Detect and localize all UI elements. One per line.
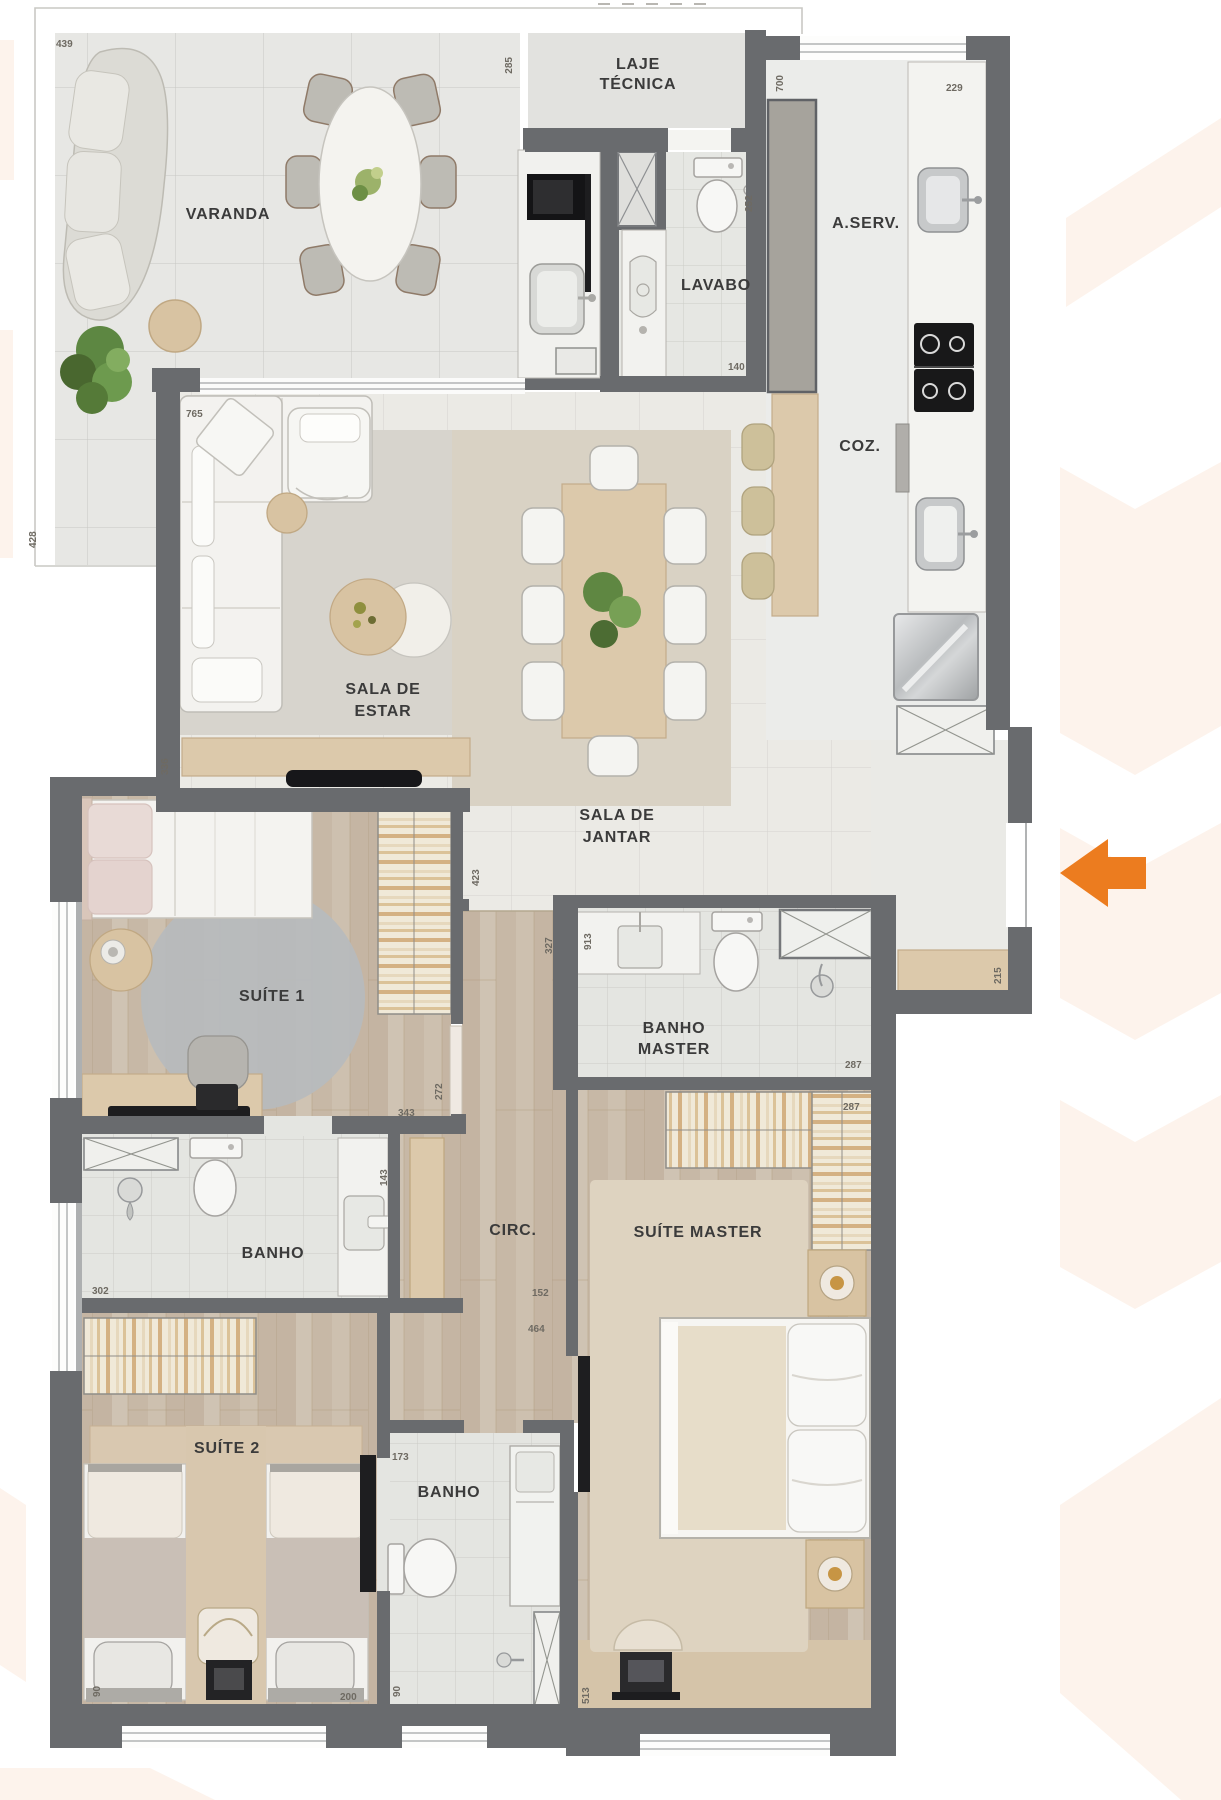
svg-text:464: 464 <box>528 1324 545 1335</box>
svg-text:LAJE: LAJE <box>616 56 660 73</box>
svg-text:90: 90 <box>392 1685 403 1697</box>
svg-text:SALA DE: SALA DE <box>579 807 654 824</box>
svg-text:287: 287 <box>843 1102 860 1113</box>
svg-text:913: 913 <box>583 933 594 950</box>
svg-text:143: 143 <box>379 1169 390 1186</box>
svg-text:229: 229 <box>946 83 963 94</box>
svg-text:JANTAR: JANTAR <box>583 829 652 846</box>
svg-text:BANHO: BANHO <box>643 1020 706 1037</box>
svg-text:302: 302 <box>92 1286 109 1297</box>
svg-text:MASTER: MASTER <box>638 1041 710 1058</box>
svg-text:423: 423 <box>471 869 482 886</box>
svg-text:513: 513 <box>581 1687 592 1704</box>
svg-text:428: 428 <box>28 531 39 548</box>
svg-text:336: 336 <box>160 758 171 775</box>
svg-text:200: 200 <box>340 1692 357 1703</box>
svg-text:COZ.: COZ. <box>839 438 880 455</box>
svg-text:90: 90 <box>92 1685 103 1697</box>
svg-text:287: 287 <box>845 1060 862 1071</box>
svg-text:343: 343 <box>398 1108 415 1119</box>
svg-text:272: 272 <box>434 1083 445 1100</box>
svg-text:765: 765 <box>186 409 203 420</box>
svg-text:700: 700 <box>775 75 786 92</box>
svg-text:140: 140 <box>728 362 745 373</box>
svg-text:439: 439 <box>56 39 73 50</box>
svg-text:215: 215 <box>993 967 1004 984</box>
svg-text:285: 285 <box>504 57 515 74</box>
svg-text:152: 152 <box>532 1288 549 1299</box>
svg-text:LAVABO: LAVABO <box>681 277 751 294</box>
svg-text:ESTAR: ESTAR <box>354 703 411 720</box>
svg-text:327: 327 <box>544 937 555 954</box>
svg-text:CIRC.: CIRC. <box>489 1222 537 1239</box>
svg-text:VARANDA: VARANDA <box>186 206 270 223</box>
svg-text:BANHO: BANHO <box>242 1245 305 1262</box>
svg-text:A.SERV.: A.SERV. <box>832 215 900 232</box>
svg-text:252: 252 <box>744 195 755 212</box>
svg-text:TÉCNICA: TÉCNICA <box>600 74 677 93</box>
svg-text:SUÍTE 2: SUÍTE 2 <box>194 1438 260 1457</box>
svg-text:BANHO: BANHO <box>418 1484 481 1501</box>
svg-text:173: 173 <box>392 1452 409 1463</box>
svg-text:SUÍTE 1: SUÍTE 1 <box>239 986 305 1005</box>
svg-text:SALA DE: SALA DE <box>345 681 420 698</box>
svg-text:SUÍTE MASTER: SUÍTE MASTER <box>634 1222 763 1241</box>
